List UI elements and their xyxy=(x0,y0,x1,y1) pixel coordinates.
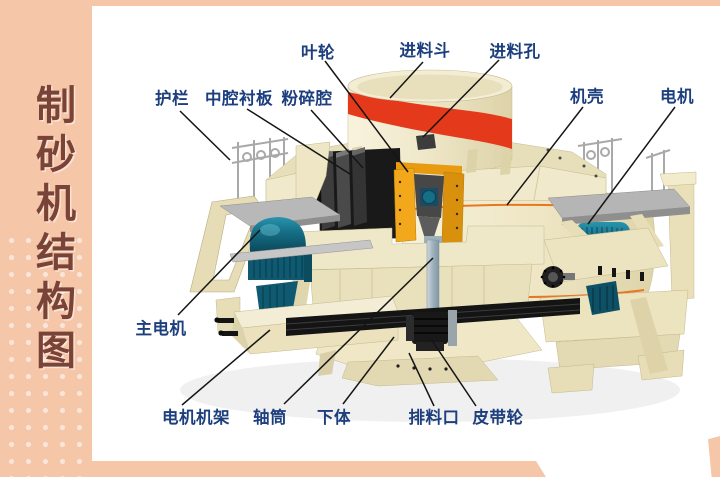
diagram-page: 制砂机结构图 xyxy=(0,0,720,477)
leader-line-feed-hopper xyxy=(390,62,423,98)
leader-line-cavity-liner xyxy=(247,109,350,174)
leader-line-belt-pulley xyxy=(431,339,476,406)
leader-line-lower-body xyxy=(343,337,394,404)
leader-line-impeller xyxy=(325,61,408,172)
leader-line-shaft-tube xyxy=(284,258,433,404)
leader-line-motor xyxy=(588,107,675,224)
leader-lines xyxy=(0,0,720,477)
leader-line-main-motor xyxy=(178,230,260,315)
leader-line-crushing-chamber xyxy=(311,110,363,168)
leader-line-casing xyxy=(507,107,583,205)
leader-line-motor-frame xyxy=(182,330,270,405)
leader-line-guardrail xyxy=(180,111,230,160)
leader-line-discharge-port xyxy=(409,353,434,406)
leader-line-feed-hole xyxy=(423,60,499,137)
